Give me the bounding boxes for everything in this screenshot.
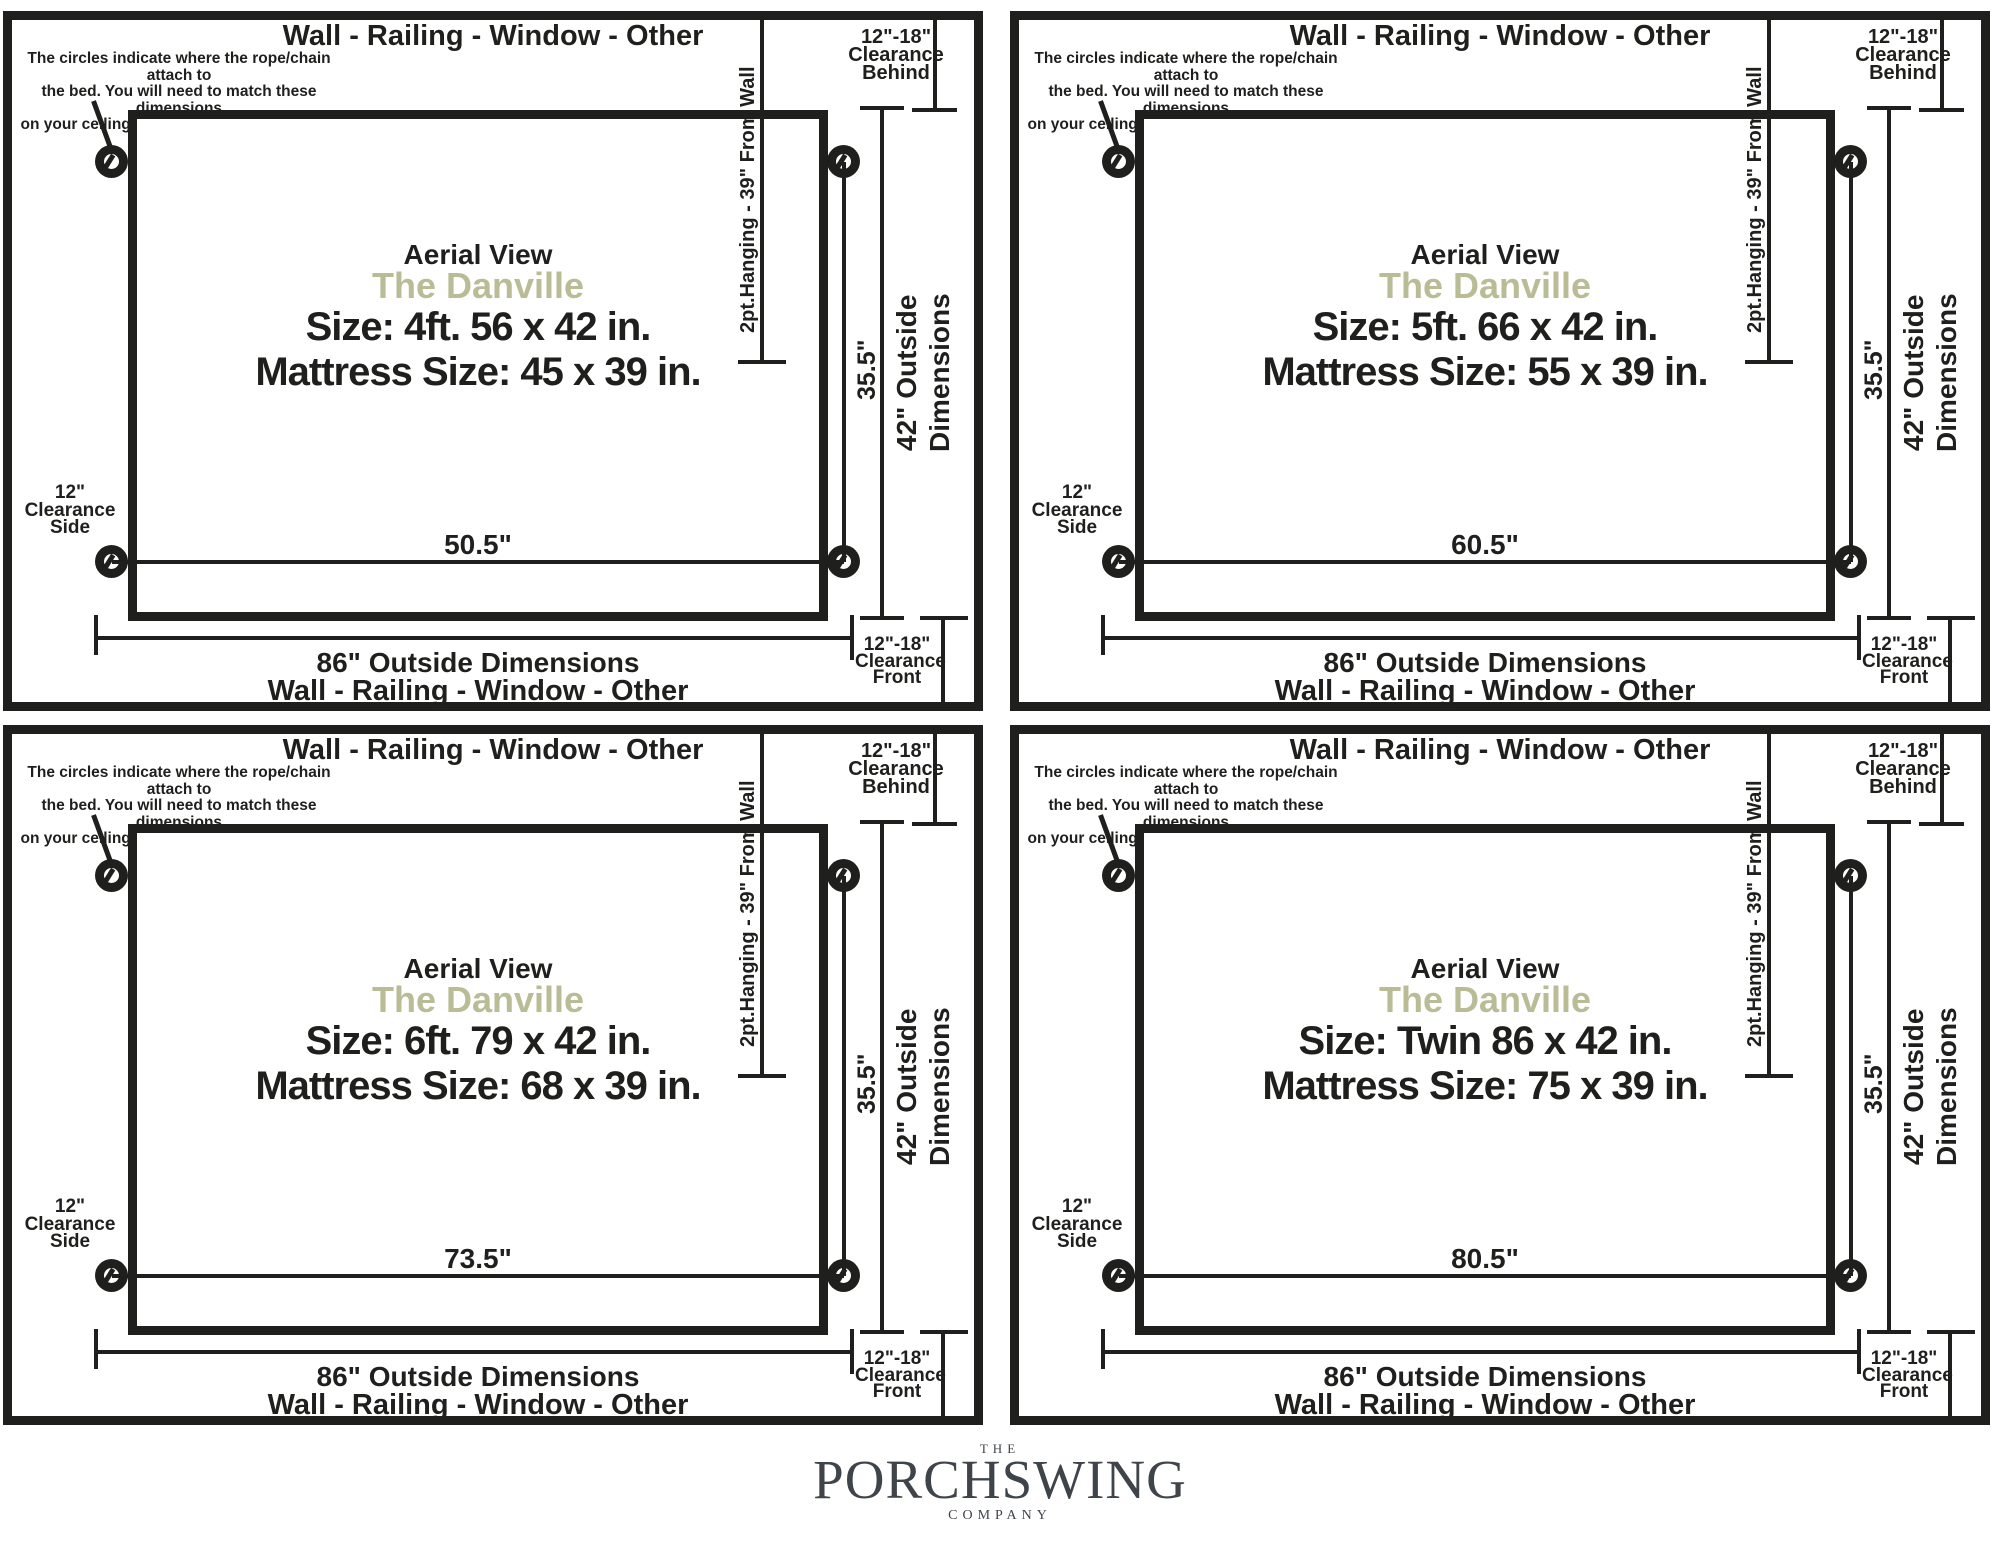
hanging-dimension-tick <box>1745 360 1793 364</box>
dimension-sheet: Wall - Railing - Window - Other The circ… <box>0 0 2000 1545</box>
outside-width-tick-right <box>850 615 854 660</box>
outside-width-dimension-value: 86" Outside Dimensions <box>128 1362 828 1392</box>
logo-wordmark: PORCHSWING <box>0 1452 2000 1507</box>
product-name: The Danville <box>1135 267 1835 305</box>
clearance-front-label: 12"-18" Clearance Front <box>1862 1351 1946 1401</box>
outside-depth-label-line: Dimensions <box>1930 228 1963 518</box>
outside-depth-dimension-line <box>1887 824 1891 1334</box>
size-label: Size: Twin 86 x 42 in. <box>1135 1019 1835 1063</box>
outside-width-tick-right <box>1857 1329 1861 1374</box>
clearance-front-line-text: Front <box>855 1384 939 1401</box>
clearance-side-line: Side <box>1027 519 1127 537</box>
attach-width-dimension-value: 50.5" <box>128 529 828 561</box>
outside-width-tick-left <box>94 615 98 655</box>
outside-width-dimension-line <box>1103 636 1858 640</box>
clearance-front-line-text: Front <box>1862 670 1946 687</box>
outside-width-tick-left <box>1101 615 1105 655</box>
outside-width-tick-left <box>1101 1329 1105 1369</box>
attach-width-dimension-value: 60.5" <box>1135 529 1835 561</box>
product-name: The Danville <box>128 267 828 305</box>
size-panel-6ft: Wall - Railing - Window - Other The circ… <box>3 725 983 1425</box>
attach-span-dimension-line <box>842 162 846 562</box>
attach-width-dimension-value: 73.5" <box>128 1243 828 1275</box>
rope-attach-point-top-left <box>1102 145 1135 178</box>
clearance-behind-tick <box>912 108 957 112</box>
outside-depth-tick-bottom <box>1867 1330 1911 1334</box>
hanging-dimension-label: 2pt.Hanging - 39" From Wall <box>734 762 762 1066</box>
clearance-side-line: 12" <box>1027 1198 1127 1216</box>
clearance-side-line: 12" <box>1027 484 1127 502</box>
clearance-behind-line-text: Behind <box>1843 64 1963 82</box>
hanging-dimension-label: 2pt.Hanging - 39" From Wall <box>1741 762 1769 1066</box>
clearance-behind-line-text: Behind <box>1843 778 1963 796</box>
outside-depth-dimension-label: 42" Outside Dimensions <box>890 228 960 518</box>
outside-width-tick-left <box>94 1329 98 1369</box>
mattress-size-label: Mattress Size: 75 x 39 in. <box>1135 1064 1835 1108</box>
outside-depth-label-line: 42" Outside <box>1897 228 1930 518</box>
clearance-behind-line-text: Behind <box>836 778 956 796</box>
outside-depth-dimension-line <box>1887 110 1891 620</box>
outside-depth-tick-bottom <box>860 1330 904 1334</box>
rope-attach-point-top-left <box>1102 859 1135 892</box>
clearance-side-line: Side <box>20 1233 120 1251</box>
clearance-side-label: 12" Clearance Side <box>1027 484 1127 537</box>
attach-span-dimension-line <box>1849 876 1853 1276</box>
attach-span-dimension-line <box>1849 162 1853 562</box>
rope-attach-point-top-left <box>95 859 128 892</box>
outside-depth-label-line: Dimensions <box>923 942 956 1232</box>
logo-company: COMPANY <box>0 1508 2000 1524</box>
clearance-behind-tick <box>1919 108 1964 112</box>
outside-depth-dimension-line <box>880 110 884 620</box>
outside-depth-dimension-line <box>880 824 884 1334</box>
clearance-side-line: Side <box>1027 1233 1127 1251</box>
clearance-side-label: 12" Clearance Side <box>20 484 120 537</box>
outside-depth-tick-bottom <box>1867 616 1911 620</box>
outside-width-dimension-line <box>96 636 851 640</box>
clearance-behind-label: 12"-18" Clearance Behind <box>1843 28 1963 82</box>
boundary-label-bottom: Wall - Railing - Window - Other <box>128 676 828 706</box>
clearance-side-line: 12" <box>20 1198 120 1216</box>
outside-width-dimension-value: 86" Outside Dimensions <box>1135 648 1835 678</box>
clearance-side-line: Side <box>20 519 120 537</box>
clearance-front-label: 12"-18" Clearance Front <box>855 637 939 687</box>
outside-depth-label-line: Dimensions <box>1930 942 1963 1232</box>
product-name: The Danville <box>1135 981 1835 1019</box>
size-label: Size: 4ft. 56 x 42 in. <box>128 305 828 349</box>
size-panel-5ft: Wall - Railing - Window - Other The circ… <box>1010 11 1990 711</box>
outside-depth-tick-bottom <box>860 616 904 620</box>
clearance-front-line-text: Front <box>855 670 939 687</box>
outside-depth-label-line: 42" Outside <box>890 942 923 1232</box>
outside-depth-tick-top <box>1867 106 1911 110</box>
attach-span-dimension-value: 35.5" <box>852 1034 882 1134</box>
clearance-side-line: 12" <box>20 484 120 502</box>
clearance-behind-tick <box>1919 822 1964 826</box>
outside-width-tick-right <box>850 1329 854 1374</box>
outside-depth-tick-top <box>860 106 904 110</box>
size-panel-4ft: Wall - Railing - Window - Other The circ… <box>3 11 983 711</box>
outside-depth-tick-top <box>860 820 904 824</box>
size-label: Size: 6ft. 79 x 42 in. <box>128 1019 828 1063</box>
hanging-dimension-tick <box>738 1074 786 1078</box>
clearance-side-label: 12" Clearance Side <box>1027 1198 1127 1251</box>
outside-width-dimension-value: 86" Outside Dimensions <box>1135 1362 1835 1392</box>
attach-span-dimension-line <box>842 876 846 1276</box>
outside-depth-dimension-label: 42" Outside Dimensions <box>1897 942 1967 1232</box>
mattress-size-label: Mattress Size: 45 x 39 in. <box>128 350 828 394</box>
rope-attach-point-top-left <box>95 145 128 178</box>
boundary-label-bottom: Wall - Railing - Window - Other <box>1135 676 1835 706</box>
outside-depth-label-line: 42" Outside <box>1897 942 1930 1232</box>
outside-depth-dimension-label: 42" Outside Dimensions <box>890 942 960 1232</box>
hanging-dimension-tick <box>1745 1074 1793 1078</box>
boundary-label-bottom: Wall - Railing - Window - Other <box>128 1390 828 1420</box>
clearance-behind-tick <box>912 822 957 826</box>
attach-width-dimension-value: 80.5" <box>1135 1243 1835 1275</box>
clearance-behind-line-text: Behind <box>836 64 956 82</box>
product-name: The Danville <box>128 981 828 1019</box>
clearance-behind-label: 12"-18" Clearance Behind <box>1843 742 1963 796</box>
outside-width-dimension-line <box>1103 1350 1858 1354</box>
outside-depth-tick-top <box>1867 820 1911 824</box>
outside-depth-label-line: 42" Outside <box>890 228 923 518</box>
mattress-size-label: Mattress Size: 68 x 39 in. <box>128 1064 828 1108</box>
outside-depth-label-line: Dimensions <box>923 228 956 518</box>
attach-span-dimension-value: 35.5" <box>1859 320 1889 420</box>
hanging-dimension-label: 2pt.Hanging - 39" From Wall <box>734 48 762 352</box>
clearance-front-label: 12"-18" Clearance Front <box>1862 637 1946 687</box>
outside-width-dimension-line <box>96 1350 851 1354</box>
boundary-label-bottom: Wall - Railing - Window - Other <box>1135 1390 1835 1420</box>
size-label: Size: 5ft. 66 x 42 in. <box>1135 305 1835 349</box>
attach-span-dimension-value: 35.5" <box>852 320 882 420</box>
outside-width-dimension-value: 86" Outside Dimensions <box>128 648 828 678</box>
clearance-side-label: 12" Clearance Side <box>20 1198 120 1251</box>
hanging-dimension-tick <box>738 360 786 364</box>
attach-span-dimension-value: 35.5" <box>1859 1034 1889 1134</box>
clearance-front-label: 12"-18" Clearance Front <box>855 1351 939 1401</box>
clearance-behind-label: 12"-18" Clearance Behind <box>836 28 956 82</box>
clearance-behind-label: 12"-18" Clearance Behind <box>836 742 956 796</box>
outside-width-tick-right <box>1857 615 1861 660</box>
size-panel-twin: Wall - Railing - Window - Other The circ… <box>1010 725 1990 1425</box>
hanging-dimension-label: 2pt.Hanging - 39" From Wall <box>1741 48 1769 352</box>
mattress-size-label: Mattress Size: 55 x 39 in. <box>1135 350 1835 394</box>
clearance-front-line-text: Front <box>1862 1384 1946 1401</box>
outside-depth-dimension-label: 42" Outside Dimensions <box>1897 228 1967 518</box>
